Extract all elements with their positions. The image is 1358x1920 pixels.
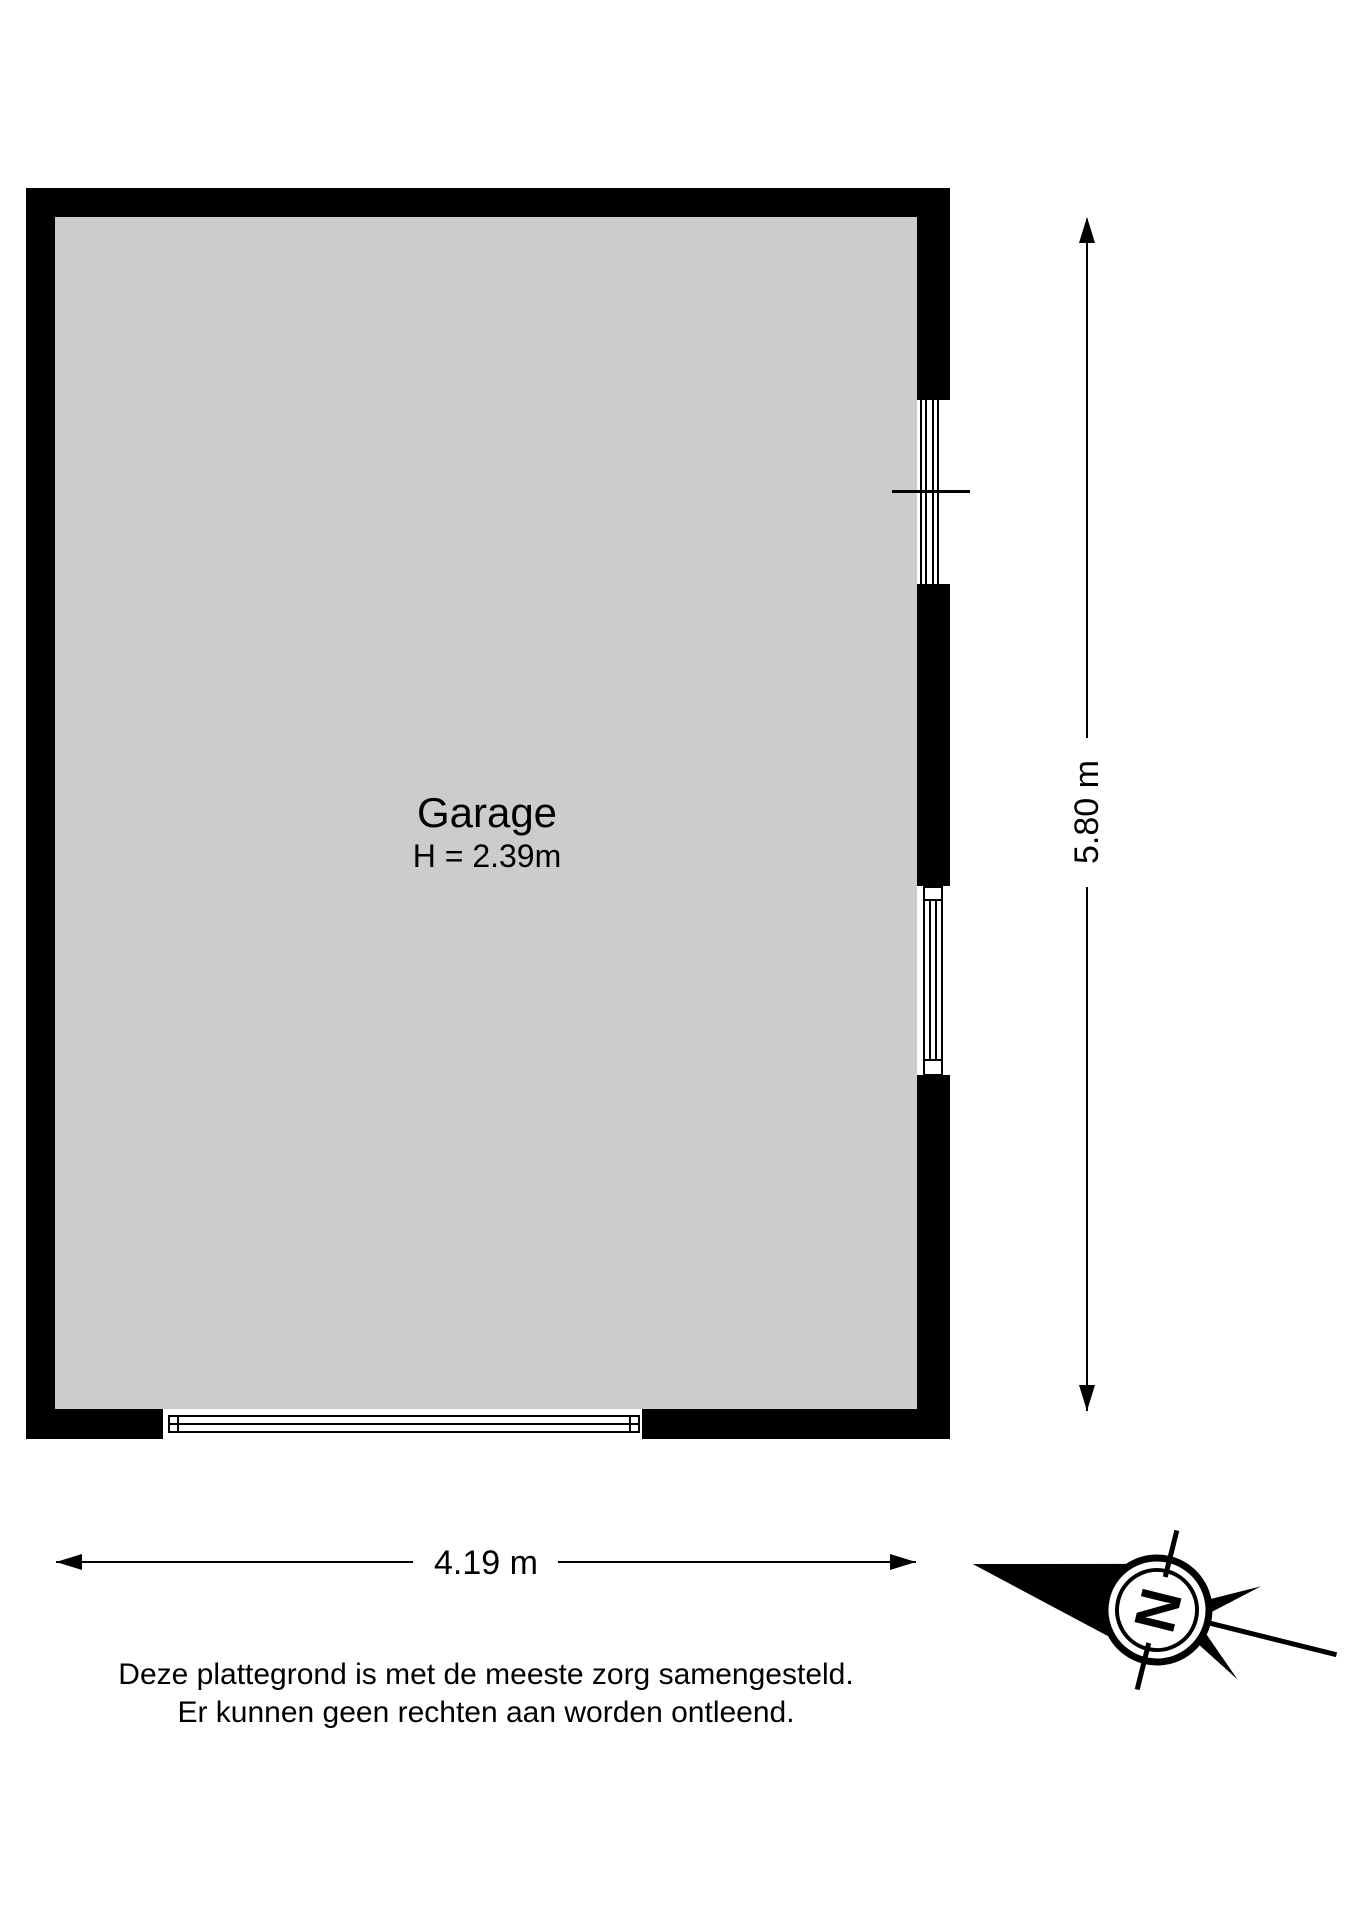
door-mid-line — [170, 1423, 638, 1425]
window-cap — [925, 899, 941, 901]
wall-right-upper — [917, 188, 950, 400]
wall-top — [26, 188, 950, 217]
dimension-line — [558, 1561, 916, 1563]
window-pane-line — [929, 901, 931, 1059]
arrow-left-icon — [56, 1554, 82, 1570]
garage-door — [168, 1415, 640, 1433]
wall-bottom-right — [642, 1409, 950, 1439]
wall-right-middle — [917, 584, 950, 886]
wall-left — [26, 188, 55, 1439]
compass-tail-line — [1207, 1623, 1336, 1655]
disclaimer-text: Deze plattegrond is met de meeste zorg s… — [0, 1656, 972, 1732]
compass-north-icon: N — [937, 1390, 1358, 1830]
wall-bottom-left — [26, 1409, 163, 1439]
door-cap — [629, 1417, 631, 1431]
window-pane-line — [935, 901, 937, 1059]
disclaimer-line-2: Er kunnen geen rechten aan worden ontlee… — [0, 1694, 972, 1732]
wall-right-lower — [917, 1075, 950, 1439]
arrow-right-icon — [890, 1554, 916, 1570]
room-name-label: Garage — [287, 789, 687, 837]
window-cap — [925, 1059, 941, 1061]
window-lower-right — [923, 886, 943, 1076]
height-dimension-label: 5.80 m — [1065, 732, 1109, 892]
door-cap — [177, 1417, 179, 1431]
room-height-label: H = 2.39m — [287, 838, 687, 875]
window-tick-mark — [892, 490, 970, 493]
arrow-up-icon — [1079, 217, 1095, 243]
dimension-line — [1086, 887, 1088, 1411]
width-dimension-label: 4.19 m — [386, 1541, 586, 1585]
floorplan-page: Garage H = 2.39m 5.80 m 4.19 m N Deze — [0, 0, 1358, 1920]
dimension-line — [56, 1561, 413, 1563]
dimension-line — [1086, 219, 1088, 738]
disclaimer-line-1: Deze plattegrond is met de meeste zorg s… — [0, 1656, 972, 1694]
